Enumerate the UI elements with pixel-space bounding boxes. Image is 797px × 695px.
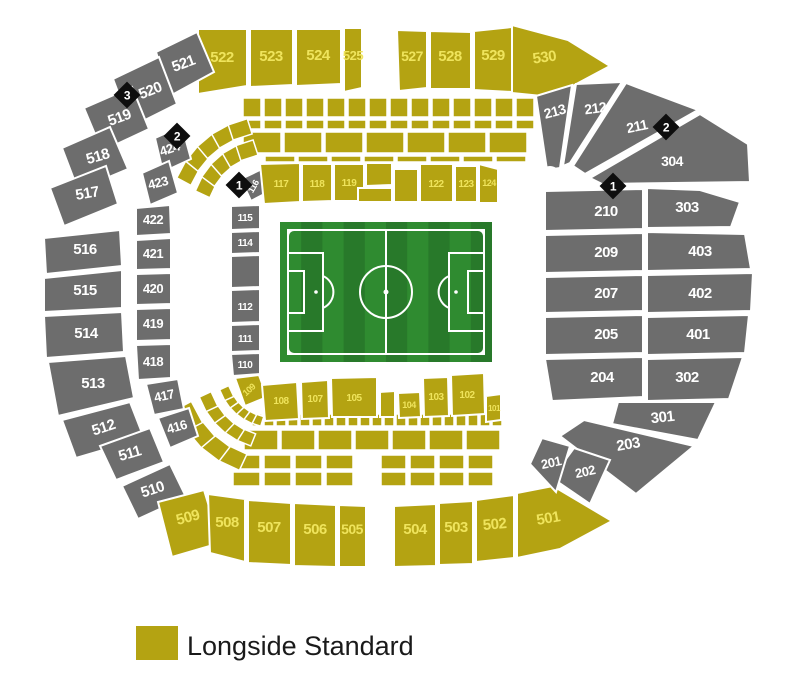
section-118-label: 118: [310, 179, 326, 190]
seat-block: [466, 430, 500, 450]
legend-swatch: [136, 626, 178, 660]
section-122[interactable]: 122: [420, 164, 453, 202]
section-114[interactable]: 114: [231, 231, 260, 254]
section-103-label: 103: [428, 392, 444, 403]
section-123[interactable]: 123: [455, 166, 477, 202]
section-523[interactable]: 523: [250, 29, 293, 87]
gate-marker-number: 1: [610, 180, 617, 194]
section-420[interactable]: 420: [136, 273, 171, 305]
section-111-label: 111: [238, 334, 253, 345]
seat-block: [264, 455, 291, 469]
seat-block: [381, 455, 406, 469]
section-104-label: 104: [402, 400, 416, 410]
section-418[interactable]: 418: [136, 344, 171, 380]
section-527-label: 527: [401, 48, 424, 64]
section-528[interactable]: 528: [430, 31, 471, 89]
seat-block: [295, 472, 322, 486]
section-417[interactable]: 417: [146, 379, 184, 415]
section-unlabeled: [380, 391, 395, 417]
gate-marker-number: 3: [124, 89, 131, 103]
section-504[interactable]: 504: [394, 504, 436, 567]
section-103[interactable]: 103: [423, 377, 449, 417]
seat-block: [411, 120, 429, 129]
section-515[interactable]: 515: [44, 270, 122, 312]
section-117[interactable]: 117: [260, 163, 300, 204]
section-102[interactable]: 102: [451, 373, 485, 416]
seat-block: [298, 156, 328, 162]
section-523-label: 523: [259, 48, 283, 65]
seat-block: [410, 455, 435, 469]
section-525-label: 525: [343, 48, 363, 63]
section-123-label: 123: [458, 179, 474, 190]
seat-block: [432, 120, 450, 129]
seat-block: [474, 98, 492, 117]
section-108[interactable]: 108: [262, 382, 299, 421]
section-529[interactable]: 529: [474, 27, 512, 92]
seat-block: [429, 430, 463, 450]
section-402-label: 402: [688, 285, 712, 302]
section-530-label: 530: [532, 47, 558, 67]
seat-block: [516, 98, 534, 117]
section-204[interactable]: 204: [545, 357, 643, 401]
gate-marker-number: 2: [663, 121, 670, 135]
seat-block: [410, 472, 435, 486]
gate-marker-number: 2: [174, 130, 181, 144]
seat-block: [495, 98, 513, 117]
section-124-label: 124: [482, 178, 496, 188]
section-302-label: 302: [675, 369, 699, 386]
section-508-label: 508: [215, 514, 239, 531]
seat-block: [285, 120, 303, 129]
section-115-label: 115: [238, 213, 254, 224]
seat-block: [432, 98, 450, 117]
stadium-seat-map: Longside Standard 5225235245255275285295…: [0, 0, 797, 695]
section-shape: [358, 188, 392, 202]
seat-block: [348, 120, 366, 129]
section-117-label: 117: [274, 179, 290, 190]
section-210[interactable]: 210: [545, 189, 643, 231]
section-105[interactable]: 105: [331, 377, 377, 417]
section-508[interactable]: 508: [208, 494, 245, 562]
section-527[interactable]: 527: [397, 30, 427, 91]
section-524-label: 524: [306, 47, 331, 64]
section-525[interactable]: 525: [343, 28, 363, 92]
legend-label: Longside Standard: [187, 631, 414, 661]
section-110-label: 110: [238, 360, 254, 371]
section-114-label: 114: [238, 238, 254, 249]
section-304-label: 304: [661, 153, 684, 169]
section-205[interactable]: 205: [545, 315, 643, 355]
section-401[interactable]: 401: [647, 315, 749, 355]
seat-block: [284, 132, 322, 153]
seat-block: [331, 156, 361, 162]
section-shape: [231, 255, 260, 288]
section-107-label: 107: [307, 394, 323, 405]
seat-block: [295, 455, 322, 469]
seat-block: [366, 132, 404, 153]
seat-block: [264, 472, 291, 486]
seat-block: [392, 430, 426, 450]
section-505-label: 505: [341, 521, 364, 537]
seat-block: [468, 472, 493, 486]
section-516-label: 516: [73, 241, 97, 258]
seat-block: [369, 98, 387, 117]
section-421[interactable]: 421: [136, 238, 171, 270]
seat-block: [390, 120, 408, 129]
section-421-label: 421: [143, 246, 163, 261]
section-514-label: 514: [74, 325, 99, 342]
section-403[interactable]: 403: [647, 232, 751, 271]
section-418-label: 418: [143, 354, 163, 369]
seat-block: [495, 120, 513, 129]
seat-block: [369, 120, 387, 129]
section-110[interactable]: 110: [231, 353, 260, 376]
section-517[interactable]: 517: [50, 166, 118, 226]
section-112[interactable]: 112: [231, 289, 260, 323]
seat-block: [326, 472, 353, 486]
section-528-label: 528: [438, 48, 462, 65]
section-505[interactable]: 505: [339, 505, 366, 567]
seat-block: [306, 98, 324, 117]
section-502-label: 502: [482, 515, 507, 534]
seat-block: [453, 120, 471, 129]
section-102-label: 102: [459, 390, 475, 401]
section-207-label: 207: [594, 285, 618, 302]
pitch: [280, 222, 492, 362]
seat-block: [327, 98, 345, 117]
seat-block: [390, 98, 408, 117]
section-108-label: 108: [273, 396, 289, 407]
fan-hub: [539, 166, 561, 188]
section-unlabeled: [366, 163, 392, 186]
section-514[interactable]: 514: [44, 312, 124, 358]
seat-block: [474, 120, 492, 129]
section-420-label: 420: [143, 281, 163, 296]
section-115[interactable]: 115: [231, 205, 260, 230]
section-204-label: 204: [590, 369, 615, 386]
seat-block: [355, 430, 389, 450]
seat-block: [439, 472, 464, 486]
section-212-label: 212: [583, 99, 608, 118]
seat-block: [306, 120, 324, 129]
seat-block: [381, 472, 406, 486]
seat-block: [243, 98, 261, 117]
seat-block: [397, 156, 427, 162]
section-unlabeled: [358, 188, 392, 202]
seat-block: [439, 455, 464, 469]
seat-block: [364, 156, 394, 162]
seat-block: [281, 430, 315, 450]
section-104[interactable]: 104: [398, 392, 421, 418]
section-122-label: 122: [428, 179, 444, 190]
seat-block: [468, 455, 493, 469]
section-303-label: 303: [675, 199, 699, 216]
section-119-label: 119: [342, 178, 358, 189]
section-504-label: 504: [403, 521, 428, 538]
seat-block: [265, 156, 295, 162]
seat-block: [448, 132, 486, 153]
section-unlabeled: [231, 255, 260, 288]
section-515-label: 515: [73, 282, 97, 299]
seat-block: [463, 156, 493, 162]
section-205-label: 205: [594, 326, 618, 343]
seat-block: [318, 430, 352, 450]
section-419-label: 419: [143, 316, 163, 331]
section-507[interactable]: 507: [248, 500, 291, 565]
gate-marker-number: 1: [236, 179, 243, 193]
section-209-label: 209: [594, 244, 618, 261]
seat-block: [264, 98, 282, 117]
section-516[interactable]: 516: [44, 230, 122, 274]
section-401-label: 401: [686, 326, 710, 343]
section-524[interactable]: 524: [296, 29, 341, 86]
section-507-label: 507: [257, 519, 281, 536]
section-402[interactable]: 402: [647, 273, 753, 313]
section-209[interactable]: 209: [545, 233, 643, 273]
section-101[interactable]: 101: [486, 394, 501, 422]
section-112-label: 112: [238, 302, 254, 313]
section-101-label: 101: [488, 404, 501, 413]
section-422[interactable]: 422: [136, 205, 171, 236]
section-422-label: 422: [143, 212, 163, 227]
legend: Longside Standard: [136, 626, 414, 661]
seat-block: [489, 132, 527, 153]
section-unlabeled: [394, 169, 418, 202]
section-522-label: 522: [210, 49, 234, 66]
seat-block: [496, 156, 526, 162]
section-503-label: 503: [444, 519, 468, 536]
seat-block: [236, 140, 258, 161]
seat-block: [411, 98, 429, 117]
section-501-shape[interactable]: [517, 486, 612, 558]
seat-block: [430, 156, 460, 162]
section-301-label: 301: [650, 408, 675, 427]
section-503[interactable]: 503: [439, 501, 473, 565]
seat-block: [326, 455, 353, 469]
seat-block: [233, 472, 260, 486]
section-506-label: 506: [303, 521, 327, 538]
section-shape: [366, 163, 392, 186]
section-502[interactable]: 502: [476, 495, 514, 562]
section-124[interactable]: 124: [479, 164, 498, 203]
seat-block: [407, 132, 445, 153]
seat-block: [285, 98, 303, 117]
section-118[interactable]: 118: [302, 164, 332, 202]
section-501[interactable]: 501: [517, 486, 612, 558]
section-529-label: 529: [481, 47, 505, 64]
section-210-label: 210: [594, 203, 618, 220]
section-506[interactable]: 506: [294, 503, 336, 567]
section-107[interactable]: 107: [301, 380, 329, 419]
seat-block: [327, 120, 345, 129]
seat-block: [264, 120, 282, 129]
seat-block: [348, 98, 366, 117]
stadium-svg: Longside Standard 5225235245255275285295…: [0, 0, 797, 695]
section-513-label: 513: [81, 375, 105, 392]
section-303[interactable]: 303: [647, 188, 740, 228]
section-302[interactable]: 302: [647, 357, 743, 401]
section-419[interactable]: 419: [136, 308, 171, 341]
seat-block: [453, 98, 471, 117]
section-207[interactable]: 207: [545, 275, 643, 313]
section-403-label: 403: [688, 243, 712, 260]
section-105-label: 105: [346, 393, 362, 404]
seat-block: [325, 132, 363, 153]
section-111[interactable]: 111: [231, 324, 260, 352]
section-shape: [394, 169, 418, 202]
section-shape: [380, 391, 395, 417]
seat-block: [516, 120, 534, 129]
